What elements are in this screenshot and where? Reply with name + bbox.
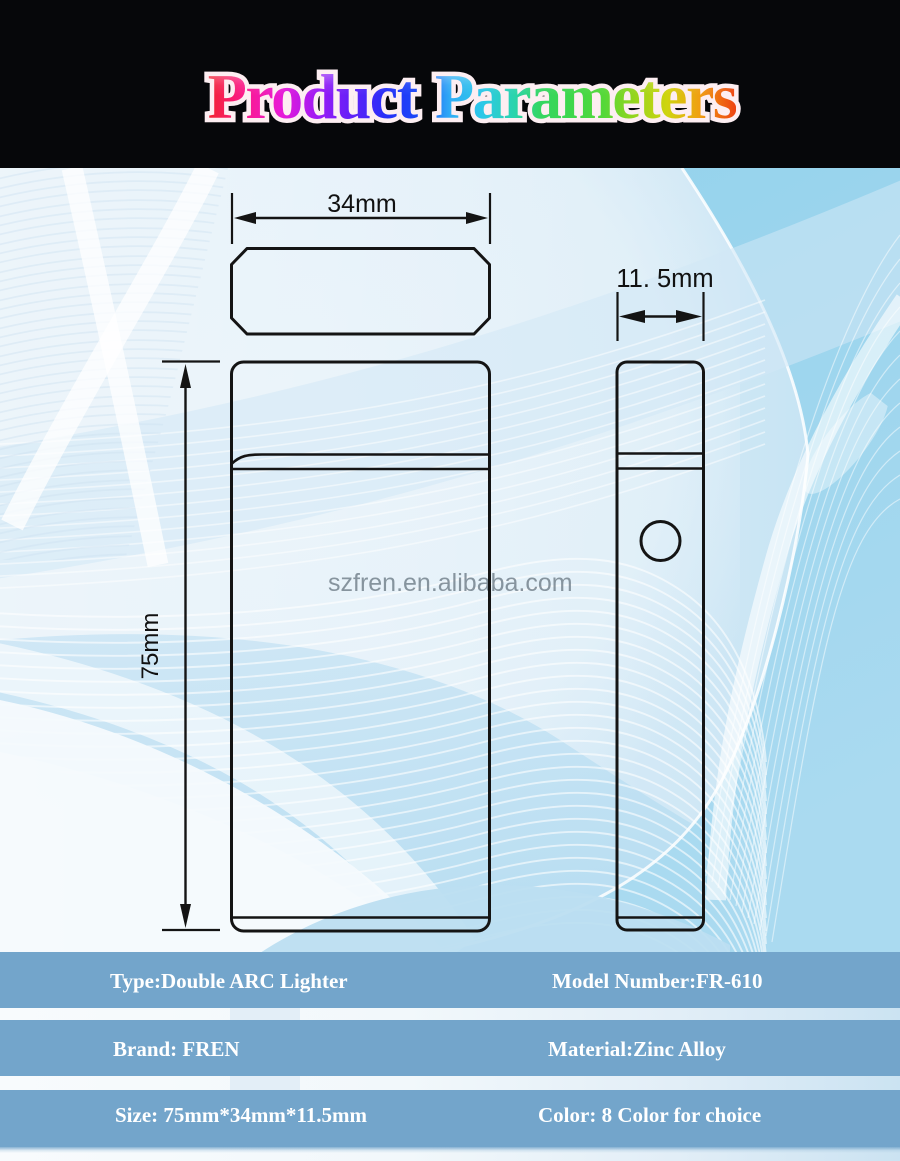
svg-text:34mm: 34mm	[327, 190, 396, 218]
svg-text:11. 5mm: 11. 5mm	[616, 265, 713, 293]
svg-text:75mm: 75mm	[137, 613, 164, 680]
